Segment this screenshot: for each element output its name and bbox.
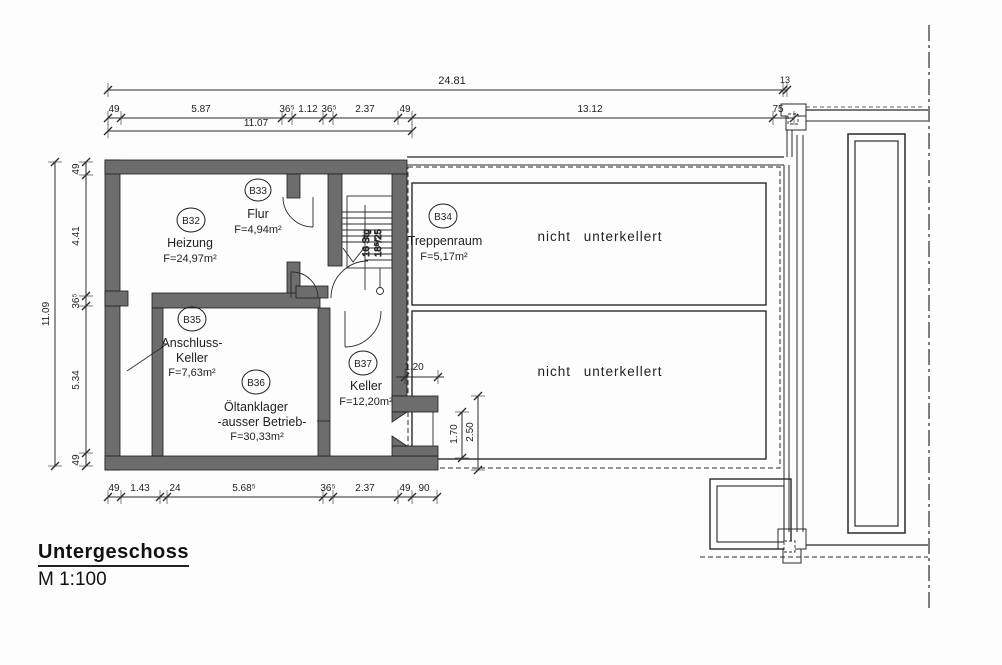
svg-text:F=5,17m²: F=5,17m² [420,251,468,263]
dim-label: 1.12 [298,104,318,115]
wall-stair-divider [328,174,342,266]
dim-label: 5.68⁵ [232,483,256,494]
wall-heizung-flur-a [287,174,300,198]
wall-mid-left [105,291,128,306]
reveal-bottom [392,436,407,446]
svg-text:Anschluss-: Anschluss- [161,336,222,350]
dim-label: 11.09 [41,301,52,326]
dim-label: 2.37 [355,483,375,494]
svg-text:B33: B33 [249,186,267,197]
svg-text:B36: B36 [247,378,265,389]
room-label-b33: B33 Flur F=4,94m² [234,179,282,236]
svg-text:F=12,20m²: F=12,20m² [339,396,393,408]
door-arc-flur-top [283,197,313,227]
wall-sill [392,446,438,456]
dim-label: 75 [772,104,784,115]
pier-bottom [778,529,806,563]
wall-top [105,160,407,174]
dim-label: 36⁵ [321,104,336,115]
room-label-b35: B35 Anschluss- Keller F=7,63m² [161,307,222,379]
drawing-scale: M 1:100 [38,569,189,591]
wall-flur-stub [296,286,328,298]
svg-text:F=4,94m²: F=4,94m² [234,224,282,236]
dashed-boundary [408,167,780,468]
wall-bottom [105,456,438,470]
dim-label: 2.50 [465,422,476,442]
svg-text:B37: B37 [354,359,372,370]
nicht-unterkellert-lower: nicht unterkellert [537,364,662,379]
room-label-b34: B34 Treppenraum F=5,17m² [408,204,483,263]
drawing-title: Untergeschoss [38,541,189,567]
door-arc-stair [331,261,368,298]
dim-label: 49 [71,454,82,466]
dim-label: 90 [418,483,430,494]
stair-post [377,288,384,295]
svg-text:F=24,97m²: F=24,97m² [163,253,217,265]
dim-label: 24 [169,483,181,494]
dim-label: 24.81 [438,75,466,87]
wall-b35-right [152,308,163,456]
dim-label: 49 [108,483,120,494]
title-block: Untergeschoss M 1:100 [38,541,189,591]
site-structures [700,25,929,608]
svg-text:-ausser Betrieb-: -ausser Betrieb- [218,415,307,429]
svg-text:Keller: Keller [176,351,208,365]
area-annotations: nicht unterkellert nicht unterkellert [537,229,662,379]
svg-text:Flur: Flur [247,207,269,221]
floorplan-canvas: 16 Stg 18⁵/25 B32 Heizung F=24,97m² B33 … [0,0,1002,665]
stairs: 16 Stg 18⁵/25 [342,196,392,295]
dim-label: 1.70 [449,424,460,444]
svg-text:Öltanklager: Öltanklager [224,400,288,414]
wall-left [105,160,120,470]
svg-text:B35: B35 [183,315,201,326]
svg-text:Keller: Keller [350,379,382,393]
bottom-room [710,479,791,549]
wall-jut [392,396,438,412]
dim-label: 49 [399,483,411,494]
pier-top [781,104,806,157]
dim-label: 5.87 [191,104,211,115]
light-shaft [848,134,905,533]
dim-label: 13.12 [577,104,602,115]
dim-label: 49 [399,104,411,115]
nicht-unterkellert-upper: nicht unterkellert [537,229,662,244]
room-label-b32: B32 Heizung F=24,97m² [163,208,217,265]
dim-label: 36⁵ [71,293,82,308]
door-arc-keller [345,311,381,347]
svg-text:Treppenraum: Treppenraum [408,234,483,248]
svg-text:B34: B34 [434,212,452,223]
terrace-area [407,157,784,468]
room-label-b37: B37 Keller F=12,20m² [339,351,393,408]
dim-label: 4.41 [71,226,82,246]
svg-text:Heizung: Heizung [167,236,213,250]
dim-label: 13 [780,75,790,85]
stair-ratio-label: 18⁵/25 [373,229,384,257]
dim-label: 36⁵ [279,104,294,115]
dim-label: 11.07 [244,118,269,129]
dim-label: 49 [71,163,82,175]
room-label-b36: B36 Öltanklager -ausser Betrieb- F=30,33… [218,370,307,443]
dim-label: 1.43 [130,483,150,494]
stair-steps-label: 16 Stg [361,229,372,256]
dim-label: 2.37 [355,104,375,115]
dim-label: 49 [108,104,120,115]
svg-text:B32: B32 [182,216,200,227]
svg-text:F=7,63m²: F=7,63m² [168,367,216,379]
dim-label: 36⁵ [320,483,335,494]
dim-label: 1.20 [404,362,424,373]
wall-b36-b37 [318,308,330,456]
reveal-top [392,412,407,422]
dim-label: 5.34 [71,370,82,390]
svg-text:F=30,33m²: F=30,33m² [230,431,284,443]
wall-mid-main [152,293,320,308]
